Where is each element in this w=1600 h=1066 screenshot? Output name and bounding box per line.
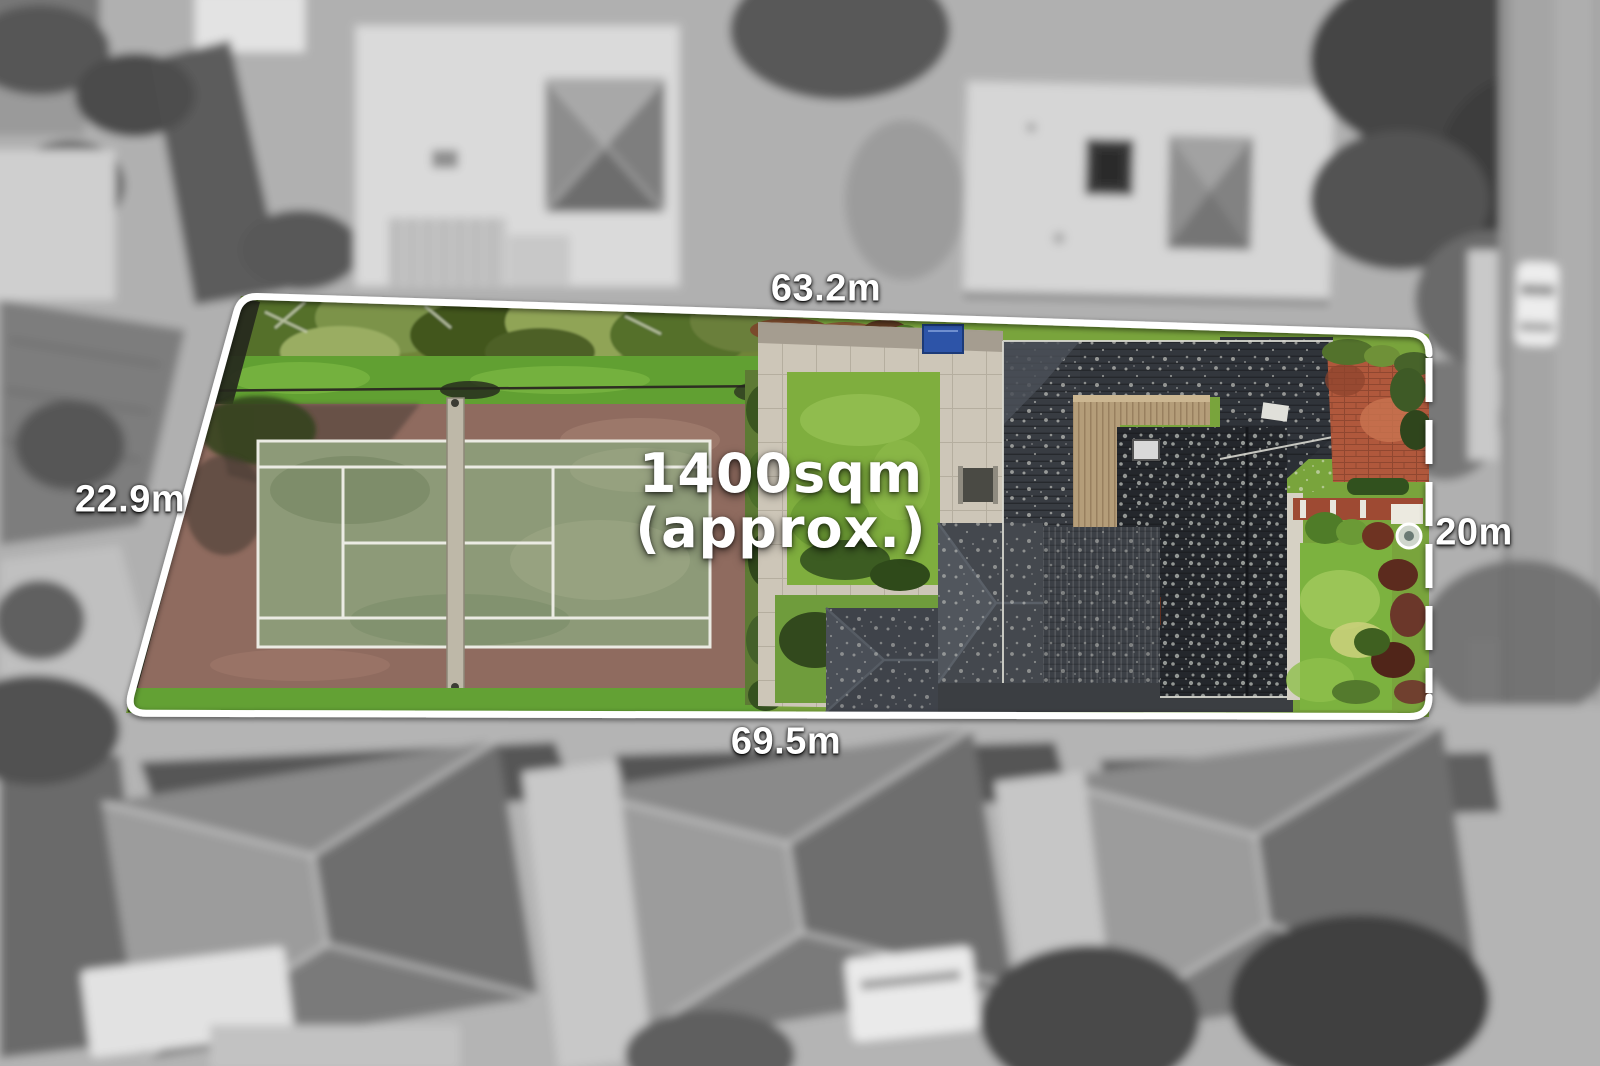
area-label-line2: (approx.) xyxy=(635,501,926,556)
footpath xyxy=(1468,250,1498,460)
outdoor-table xyxy=(958,466,998,504)
lower-ribbed-roof xyxy=(1043,527,1160,683)
skylight xyxy=(1133,440,1159,460)
parked-car xyxy=(1515,261,1560,346)
aerial-photo: 63.2m 22.9m 20m 69.5m 1400sqm (approx.) xyxy=(0,0,1600,1066)
neighbour-building-northeast xyxy=(963,81,1334,307)
small-hip-roof xyxy=(826,608,938,712)
area-label: 1400sqm (approx.) xyxy=(635,446,926,556)
tennis-net xyxy=(447,398,464,692)
white-car xyxy=(844,946,980,1043)
dimension-label-top: 63.2m xyxy=(771,268,881,311)
dimension-label-right: 20m xyxy=(1435,512,1513,555)
area-label-line1: 1400sqm xyxy=(635,446,926,501)
dimension-label-left: 22.9m xyxy=(75,479,185,522)
neighbour-building-northwest xyxy=(355,25,680,287)
north-wing-roof xyxy=(1080,341,1220,397)
dimension-label-bottom: 69.5m xyxy=(731,721,841,764)
maroon-bush xyxy=(1362,522,1394,550)
hedge xyxy=(1347,478,1409,495)
blue-shed xyxy=(923,325,963,353)
white-bench xyxy=(1391,504,1423,524)
tree-canopy xyxy=(845,120,965,280)
southwest-hip-roof xyxy=(938,523,1043,683)
